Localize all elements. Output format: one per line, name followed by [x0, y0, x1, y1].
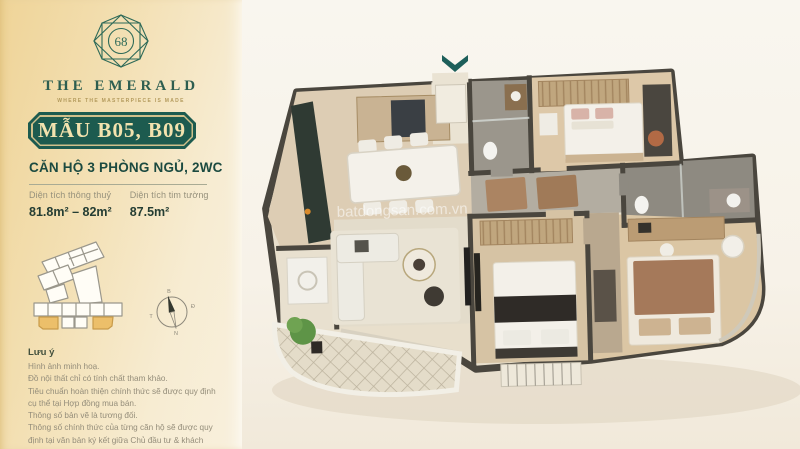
note-line: Thông số bản vẽ là tương đối. — [28, 410, 224, 422]
brand-logo: 68 THE EMERALD WHERE THE MASTERPIECE IS … — [0, 12, 242, 104]
info-sidebar: 68 THE EMERALD WHERE THE MASTERPIECE IS … — [0, 0, 242, 449]
stat-wall-area: Diện tích tim tường 87.5m² — [130, 190, 209, 219]
stat-label: Diện tích thông thuỷ — [29, 190, 112, 200]
watermark: batdongsan.com.vn — [337, 200, 468, 220]
note-line: Đồ nội thất chỉ có tính chất tham khảo. — [28, 373, 224, 385]
note-line: Hình ảnh minh hoạ. — [28, 361, 224, 373]
stat-value: 87.5m² — [130, 205, 209, 219]
bedroom3-wardrobe — [593, 270, 616, 323]
stat-clear-area: Diện tích thông thuỷ 81.8m² – 82m² — [29, 190, 112, 219]
logo-number: 68 — [115, 34, 128, 49]
hall-mat-2 — [536, 175, 578, 210]
master-side-table — [539, 113, 558, 135]
compass-south: N — [174, 331, 178, 337]
unit-b05-highlight — [39, 317, 58, 329]
apartment-unit — [262, 65, 764, 398]
stat-label: Diện tích tim tường — [130, 190, 209, 200]
hall-mat-1 — [485, 177, 527, 212]
plant-pot — [311, 341, 322, 353]
area-stats: Diện tích thông thuỷ 81.8m² – 82m² Diện … — [29, 190, 219, 219]
plaque-label: MẪU B05, B09 — [33, 117, 192, 145]
marketing-slide: 68 THE EMERALD WHERE THE MASTERPIECE IS … — [0, 0, 800, 449]
entry-door-leaf — [435, 84, 466, 123]
bedroom2-balcony — [501, 363, 582, 387]
emerald-68-gem-icon: 68 — [89, 12, 153, 74]
fridge — [391, 100, 426, 138]
note-line: Tiêu chuẩn hoàn thiện chính thức sẽ được… — [28, 386, 224, 411]
washer — [287, 257, 328, 304]
compass-east: Đ — [191, 304, 195, 310]
divider — [29, 184, 207, 185]
floorplan-3d-render: batdongsan.com.vn — [242, 0, 800, 449]
bedroom3-armchair — [721, 235, 744, 258]
brand-tagline: WHERE THE MASTERPIECE IS MADE — [0, 98, 242, 104]
disclaimer-notes: Lưu ý Hình ảnh minh hoạ. Đồ nội thất chỉ… — [28, 347, 224, 449]
bedroom3-duvet — [633, 259, 714, 315]
compass-west: T — [149, 314, 153, 320]
compass-north: B — [167, 289, 171, 295]
note-line: Thông số chính thức của từng căn hộ sẽ đ… — [28, 422, 224, 449]
brand-name: THE EMERALD — [0, 78, 242, 95]
bedroom2-runner — [494, 295, 577, 323]
stat-value: 81.8m² – 82m² — [29, 205, 112, 219]
compass-icon: B Đ N T — [146, 284, 198, 343]
sofa-cushion — [354, 240, 368, 252]
unit-b09-highlight — [93, 317, 113, 329]
model-plaque: MẪU B05, B09 — [28, 112, 196, 149]
bedroom2-wardrobe — [480, 219, 573, 245]
notes-title: Lưu ý — [28, 347, 224, 358]
building-footprint-diagram — [22, 236, 134, 345]
apartment-type-heading: CĂN HỘ 3 PHÒNG NGỦ, 2WC — [29, 160, 229, 175]
entrance-arrow-icon — [442, 55, 468, 72]
master-wardrobe — [538, 79, 629, 106]
